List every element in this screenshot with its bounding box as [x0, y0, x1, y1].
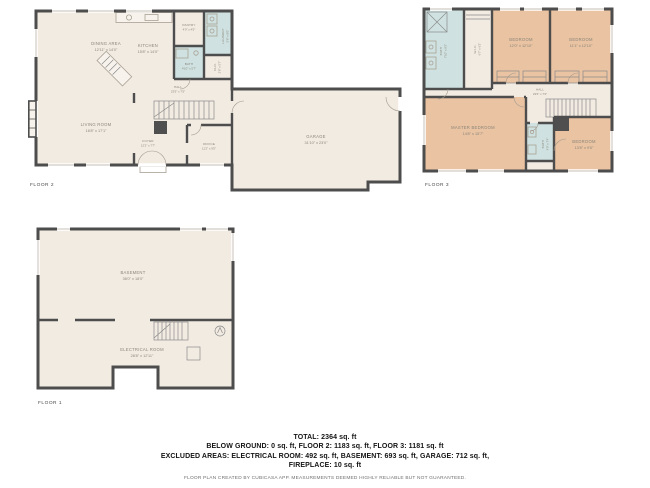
room-dims-laundry: 5'8" x 8'0": [226, 30, 230, 43]
room-label-bath2: BATH: [541, 140, 545, 149]
room-dims-foyer: 12'2" x 7'7": [141, 144, 155, 148]
room-dims-wic: 6'7" x 6'2": [478, 43, 482, 56]
floor-plan-page: DINING AREA 12'11" x 14'0" KITCHEN 15'8"…: [0, 0, 650, 488]
room-label-garage: GARAGE: [306, 134, 325, 139]
room-label-foyer: FOYER: [142, 139, 154, 143]
room-dims-dining: 12'11" x 14'0": [95, 48, 118, 52]
floor3-label: FLOOR 3: [425, 182, 449, 188]
room-dims-hall-f2: 23'5" x 7'5": [171, 90, 185, 94]
room-dims-pantry: 4'0" x 4'5": [183, 28, 196, 32]
floor3-plan: BATH 7'10" x 8'2" W.I.C. 6'7" x 6'2" BED…: [418, 5, 618, 197]
room-label-living: LIVING ROOM: [81, 122, 112, 127]
room-dims-office: 11'2" x 9'5": [202, 147, 216, 151]
room-label-wic: W.I.C.: [473, 44, 477, 53]
room-label-electrical: ELECTRICAL ROOM: [120, 347, 164, 352]
room-label-laundry: LAUNDRY: [221, 28, 225, 44]
footer-floor-areas: BELOW GROUND: 0 sq. ft, FLOOR 2: 1183 sq…: [0, 442, 650, 451]
kitchen-counter: [116, 13, 172, 23]
room-label-bath-f3: BATH: [439, 47, 443, 56]
room-label-bedroom3: BEDROOM: [572, 139, 596, 144]
room-dims-bath2: 4'0" x 7'4": [546, 138, 550, 151]
room-label-kitchen: KITCHEN: [138, 43, 158, 48]
fireplace-icon-f3: [554, 117, 569, 131]
room-dims-kitchen: 15'8" x 14'0": [138, 50, 159, 54]
room-label-closet-f2: CLO.: [213, 63, 217, 71]
room-label-bedroom2: BEDROOM: [569, 37, 593, 42]
room-label-dining: DINING AREA: [91, 41, 121, 46]
room-label-pantry: PANTRY: [182, 23, 195, 27]
room-dims-master: 14'8" x 15'7": [463, 132, 484, 136]
room-label-master: MASTER BEDROOM: [451, 125, 495, 130]
room-label-office: OFFICE: [203, 142, 215, 146]
room-label-hall-f3: HALL: [536, 88, 544, 92]
floor2-label: FLOOR 2: [30, 182, 54, 188]
footer-fireplace: FIREPLACE: 10 sq. ft: [0, 461, 650, 470]
footer-excluded-areas: EXCLUDED AREAS: ELECTRICAL ROOM: 492 sq.…: [0, 452, 650, 461]
fireplace-icon: [154, 121, 167, 134]
floor1-label: FLOOR 1: [38, 400, 62, 406]
room-dims-bedroom1: 12'0" x 12'10": [510, 44, 534, 48]
room-dims-garage: 31'10" x 23'0": [305, 141, 329, 145]
room-dims-basement: 36'0" x 18'0": [123, 277, 144, 281]
entry-step: [140, 167, 166, 173]
room-label-hall-f2: HALL: [174, 85, 182, 89]
room-dims-bedroom2: 11'1" x 12'10": [570, 44, 593, 48]
room-dims-bedroom3: 13'8" x 9'5": [575, 146, 594, 150]
summary-footer: TOTAL: 2364 sq. ft BELOW GROUND: 0 sq. f…: [0, 433, 650, 483]
room-label-bedroom1: BEDROOM: [509, 37, 533, 42]
room-dims-hall-f3: 23'6" x 7'2": [533, 92, 547, 96]
room-dims-closet-f2: 2'8" x 5'7": [218, 61, 222, 74]
room-dims-bath-f2: 4'10" x 5'7": [182, 67, 196, 71]
floor1-floor: [38, 229, 233, 388]
room-dims-living: 16'8" x 17'1": [86, 129, 107, 133]
room-bath2-f3: [526, 123, 554, 161]
room-label-basement: BASEMENT: [120, 270, 145, 275]
room-dims-electrical: 28'8" x 12'11": [131, 354, 154, 358]
room-dims-bath-f3: 7'10" x 8'2": [444, 44, 448, 58]
floor2-plan: DINING AREA 12'11" x 14'0" KITCHEN 15'8"…: [28, 5, 408, 197]
footer-disclaimer: FLOOR PLAN CREATED BY CUBICASA APP. MEAS…: [0, 474, 650, 483]
footer-total: TOTAL: 2364 sq. ft: [0, 433, 650, 442]
bay-window: [29, 101, 36, 137]
room-label-bath-f2: BATH: [185, 62, 194, 66]
floor1-plan: BASEMENT 36'0" x 18'0" ELECTRICAL ROOM 2…: [30, 215, 245, 415]
